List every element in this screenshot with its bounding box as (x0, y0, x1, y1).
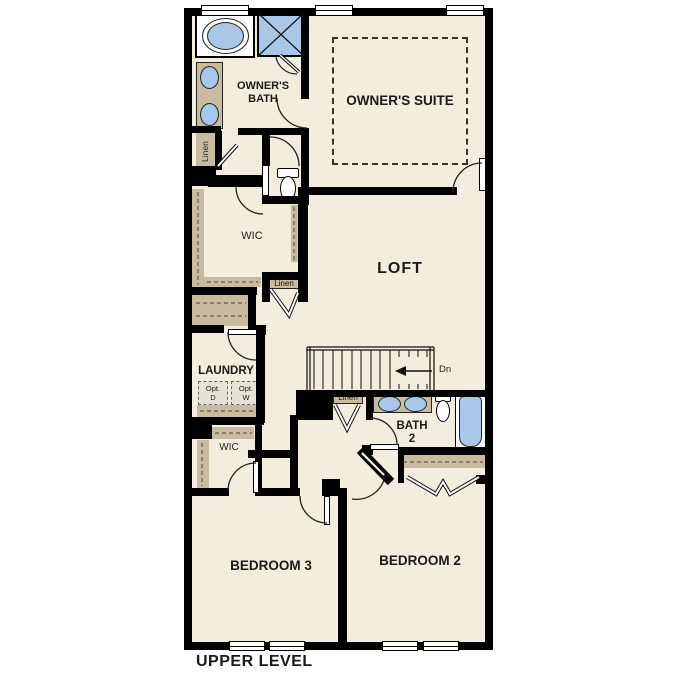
wall (299, 280, 308, 302)
room-label-bath2: BATH 2 (385, 419, 439, 447)
wall (398, 455, 404, 483)
wic-bottom-rod (204, 277, 261, 287)
wall (476, 475, 486, 484)
wic-right-rod (291, 205, 298, 262)
opt-washer-line2: W (242, 393, 249, 402)
opt-dryer-line2: D (210, 393, 215, 402)
bedroom2-text: BEDROOM 2 (379, 553, 461, 569)
closet-label-linen-bath: Linen (196, 134, 216, 170)
wic2-top-rod (212, 427, 254, 439)
wall (338, 488, 347, 650)
optional-dryer-box: Opt. D (198, 381, 228, 405)
shower (257, 12, 305, 57)
wall (262, 272, 308, 280)
room-label-owners-bath: OWNER'S BATH (222, 78, 304, 108)
wall (257, 488, 300, 496)
wic-left-rod (192, 189, 204, 287)
hall-closet-shelf (192, 294, 249, 326)
window (315, 5, 353, 16)
wall (262, 128, 270, 166)
laundry-text: LAUNDRY (198, 365, 254, 378)
room-label-laundry: LAUNDRY (190, 365, 262, 379)
wall (215, 131, 222, 170)
plan-title-text: UPPER LEVEL (196, 653, 313, 671)
door-panel-wic2 (253, 461, 259, 493)
linen-bath-text: Linen (201, 142, 211, 163)
wall (485, 8, 493, 650)
bathtub-owners (195, 12, 255, 58)
sink-bath2-2 (404, 396, 427, 412)
wall (248, 288, 256, 332)
window (269, 641, 305, 651)
wall (184, 423, 212, 439)
wall (398, 447, 487, 455)
plan-title: UPPER LEVEL (196, 652, 416, 672)
wall (296, 390, 333, 420)
room-label-bedroom3: BEDROOM 3 (210, 557, 332, 575)
bedroom3-text: BEDROOM 3 (230, 558, 312, 574)
bathtub-bath2 (455, 391, 486, 452)
wic-text: WIC (241, 230, 262, 243)
wall (208, 175, 264, 187)
window (201, 5, 249, 16)
door-panel-water-closet (262, 165, 269, 196)
wall (262, 280, 270, 302)
owners-suite-text: OWNER'S SUITE (346, 93, 453, 109)
door-panel-laundry (228, 329, 257, 335)
window (446, 5, 484, 16)
dn-text: Dn (439, 365, 451, 376)
door-panel-bedroom3 (324, 496, 330, 525)
linen-hall-label: Linen (274, 279, 294, 288)
wall (238, 128, 302, 135)
wall (184, 325, 224, 333)
wall (184, 488, 229, 496)
bedroom2-closet-shelf (400, 455, 485, 468)
window (382, 641, 418, 651)
wall (184, 287, 257, 295)
wic2-text: WIC (219, 442, 238, 454)
room-label-wic2: WIC (212, 441, 246, 454)
window (423, 641, 459, 651)
bathtub-bath2-basin (459, 396, 482, 447)
sink-owners-2 (200, 103, 219, 126)
bath2-text-line2: 2 (409, 433, 415, 446)
bath2-text-line1: BATH (396, 420, 427, 433)
wall (301, 187, 457, 195)
sink-bath2-1 (378, 396, 401, 412)
loft-text: LOFT (377, 260, 423, 278)
stairs-down-label: Dn (439, 364, 463, 376)
wic2-left-rod (197, 440, 209, 488)
room-label-loft: LOFT (358, 259, 442, 279)
sink-owners-1 (200, 66, 219, 89)
room-label-wic: WIC (235, 229, 269, 243)
opt-dryer-line1: Opt. (206, 384, 220, 393)
floor-plan: Linen Linen Opt. D Opt. W (0, 0, 687, 687)
room-label-bedroom2: BEDROOM 2 (360, 552, 480, 570)
door-panel-owners-suite (479, 158, 486, 191)
opt-washer-line1: Opt. (239, 384, 253, 393)
window (229, 641, 265, 651)
room-label-owners-suite: OWNER'S SUITE (345, 83, 455, 119)
wall (248, 450, 297, 458)
owners-bath-text: OWNER'S BATH (222, 80, 304, 105)
bathtub-basin (207, 22, 244, 50)
